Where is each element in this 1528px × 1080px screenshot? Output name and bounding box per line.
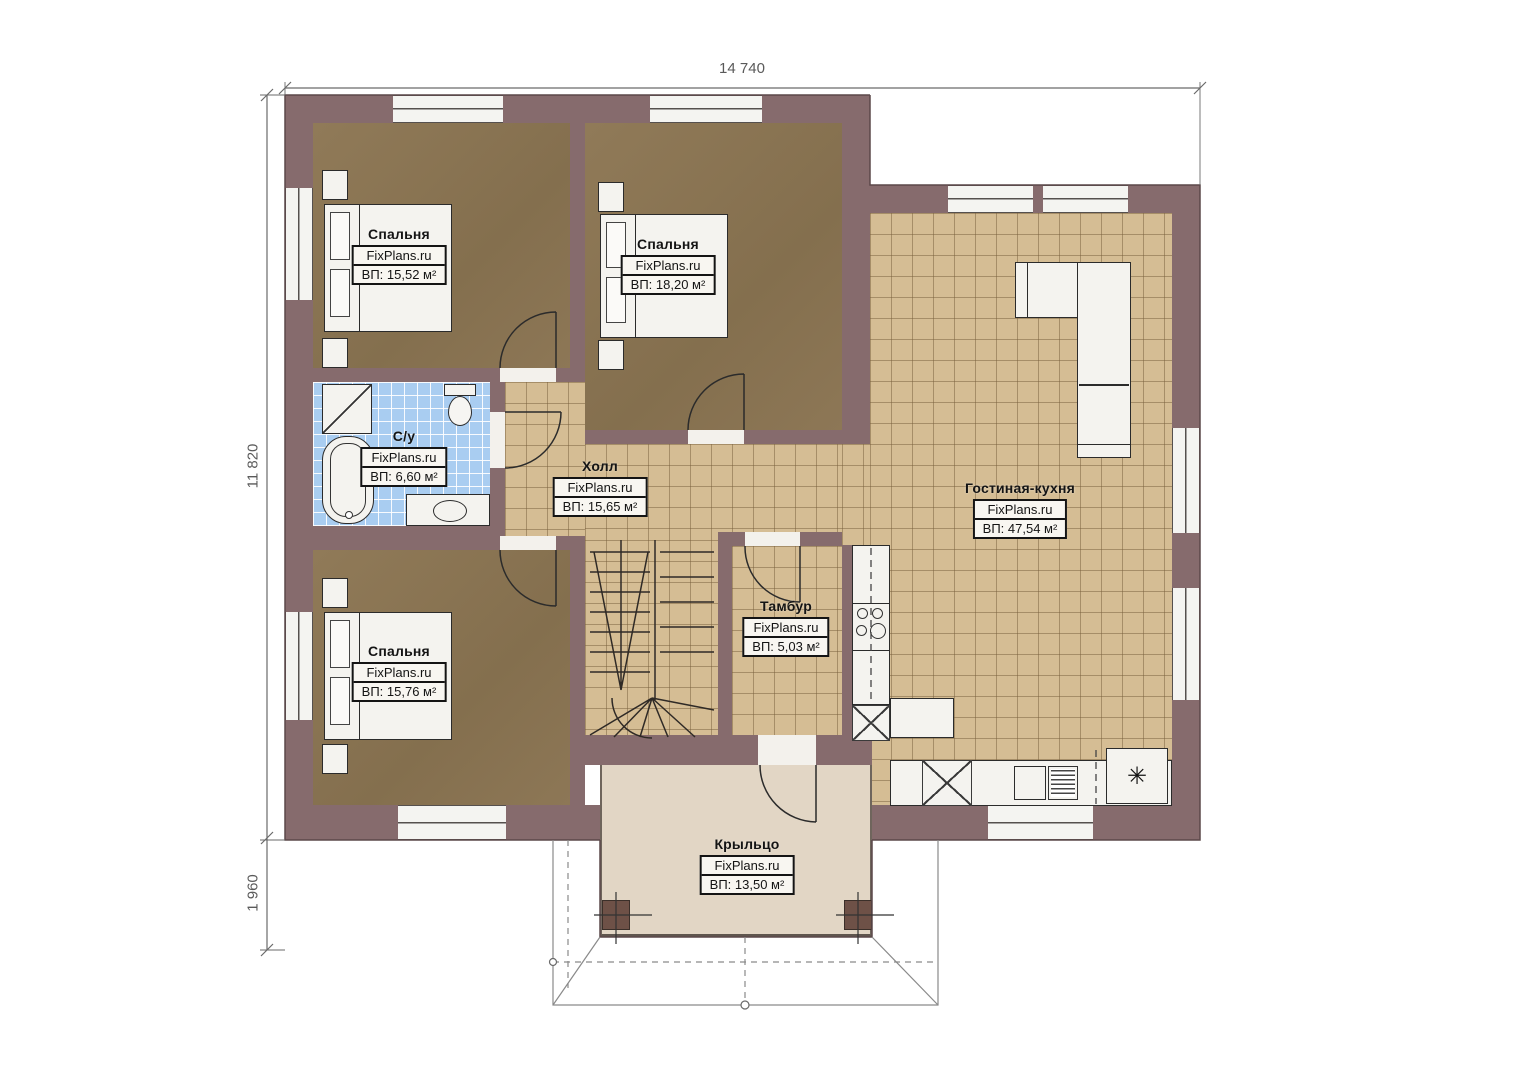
room-info-box: FixPlans.ru ВП: 13,50 м² (700, 855, 795, 895)
room-area: ВП: 15,52 м² (354, 264, 445, 283)
porch-post (844, 900, 872, 930)
watermark: FixPlans.ru (555, 479, 646, 496)
room-info-box: FixPlans.ru ВП: 15,65 м² (553, 477, 648, 517)
room-info-box: FixPlans.ru ВП: 6,60 м² (360, 447, 447, 487)
wall-bedroom1-2 (570, 123, 585, 382)
door-opening-entrance (758, 735, 816, 765)
dimension-height-label: 11 820 (245, 439, 262, 494)
nightstand-icon (322, 338, 348, 368)
window (1172, 428, 1200, 533)
nightstand-icon (598, 340, 624, 370)
window (1172, 588, 1200, 700)
appliance-x-icon (852, 705, 890, 741)
room-area: ВП: 18,20 м² (623, 274, 714, 293)
window (988, 805, 1093, 840)
stove-burner (870, 623, 886, 639)
room-info-box: FixPlans.ru ВП: 15,76 м² (352, 662, 447, 702)
door-opening-bedroom1 (500, 368, 556, 382)
sofa-icon (1077, 262, 1131, 458)
pillow-icon (330, 212, 350, 260)
window (650, 95, 762, 123)
room-name: С/у (360, 428, 447, 444)
nightstand-icon (598, 182, 624, 212)
appliance-x-icon (922, 760, 972, 806)
room-name: Гостиная-кухня (965, 480, 1075, 496)
door-opening-bedroom3 (500, 536, 556, 550)
nightstand-icon (322, 578, 348, 608)
watermark: FixPlans.ru (744, 619, 827, 636)
window (393, 95, 503, 123)
room-label-bathroom: С/у FixPlans.ru ВП: 6,60 м² (360, 428, 447, 487)
floor-plan: ✳ (0, 0, 1528, 1080)
door-opening-tambour (745, 532, 800, 546)
watermark: FixPlans.ru (354, 664, 445, 681)
room-label-bedroom2: Спальня FixPlans.ru ВП: 18,20 м² (621, 236, 716, 295)
nightstand-icon (322, 744, 348, 774)
window (1043, 185, 1128, 213)
stove-burner (857, 608, 868, 619)
drainboard-icon (1048, 766, 1078, 800)
sofa-armrest (1077, 444, 1131, 458)
wall-bedroom3-right (570, 536, 585, 805)
room-info-box: FixPlans.ru ВП: 5,03 м² (742, 617, 829, 657)
watermark: FixPlans.ru (623, 257, 714, 274)
room-area: ВП: 15,65 м² (555, 496, 646, 515)
toilet-bowl-icon (448, 396, 472, 426)
room-name: Тамбур (742, 598, 829, 614)
porch-post (602, 900, 630, 930)
pillow-icon (330, 677, 350, 725)
watermark: FixPlans.ru (354, 247, 445, 264)
sink-vanity-icon (406, 494, 490, 526)
room-label-living-kitchen: Гостиная-кухня FixPlans.ru ВП: 47,54 м² (965, 480, 1075, 539)
pillow-icon (330, 269, 350, 317)
kitchen-counter (890, 698, 954, 738)
room-label-bedroom3: Спальня FixPlans.ru ВП: 15,76 м² (352, 643, 447, 702)
room-area: ВП: 5,03 м² (744, 636, 827, 655)
room-label-hall: Холл FixPlans.ru ВП: 15,65 м² (553, 458, 648, 517)
room-label-bedroom1: Спальня FixPlans.ru ВП: 15,52 м² (352, 226, 447, 285)
floor-passage (842, 444, 872, 545)
nightstand-icon (322, 170, 348, 200)
sink-basin-icon (433, 500, 467, 522)
room-label-tambour: Тамбур FixPlans.ru ВП: 5,03 м² (742, 598, 829, 657)
dimension-porch-label: 1 960 (245, 869, 262, 917)
door-opening-bedroom2 (688, 430, 744, 444)
sofa-armrest (1015, 262, 1028, 318)
room-label-porch: Крыльцо FixPlans.ru ВП: 13,50 м² (700, 836, 795, 895)
wall-top-left (285, 95, 870, 123)
kitchen-sink-icon (1014, 766, 1046, 800)
room-area: ВП: 15,76 м² (354, 681, 445, 700)
room-area: ВП: 47,54 м² (975, 518, 1066, 537)
stove-burner (872, 608, 883, 619)
washing-machine-icon (322, 384, 372, 434)
window (285, 188, 313, 300)
room-info-box: FixPlans.ru ВП: 18,20 м² (621, 255, 716, 295)
room-name: Спальня (621, 236, 716, 252)
room-area: ВП: 13,50 м² (702, 874, 793, 893)
asterisk-glyph: ✳ (1127, 762, 1147, 791)
room-name: Спальня (352, 226, 447, 242)
room-name: Спальня (352, 643, 447, 659)
toilet-tank-icon (444, 384, 476, 396)
bathtub-drain (345, 511, 353, 519)
wall-tambour-left (718, 546, 732, 735)
room-name: Крыльцо (700, 836, 795, 852)
room-area: ВП: 6,60 м² (362, 466, 445, 485)
watermark: FixPlans.ru (362, 449, 445, 466)
floor-stairs (585, 540, 718, 735)
room-info-box: FixPlans.ru ВП: 15,52 м² (352, 245, 447, 285)
pillow-icon (330, 620, 350, 668)
wall-porch-top (585, 735, 872, 765)
window (285, 612, 313, 720)
window (398, 805, 506, 840)
stove-burner (856, 625, 867, 636)
room-name: Холл (553, 458, 648, 474)
watermark: FixPlans.ru (975, 501, 1066, 518)
watermark: FixPlans.ru (702, 857, 793, 874)
wall-bedroom2-right (842, 213, 870, 444)
stove-icon (852, 603, 890, 651)
sofa-seam (1079, 384, 1129, 386)
boiler-asterisk-icon: ✳ (1106, 748, 1168, 804)
door-opening-bathroom (490, 412, 505, 468)
room-info-box: FixPlans.ru ВП: 47,54 м² (973, 499, 1068, 539)
window (948, 185, 1033, 213)
dimension-width-label: 14 740 (714, 60, 770, 77)
